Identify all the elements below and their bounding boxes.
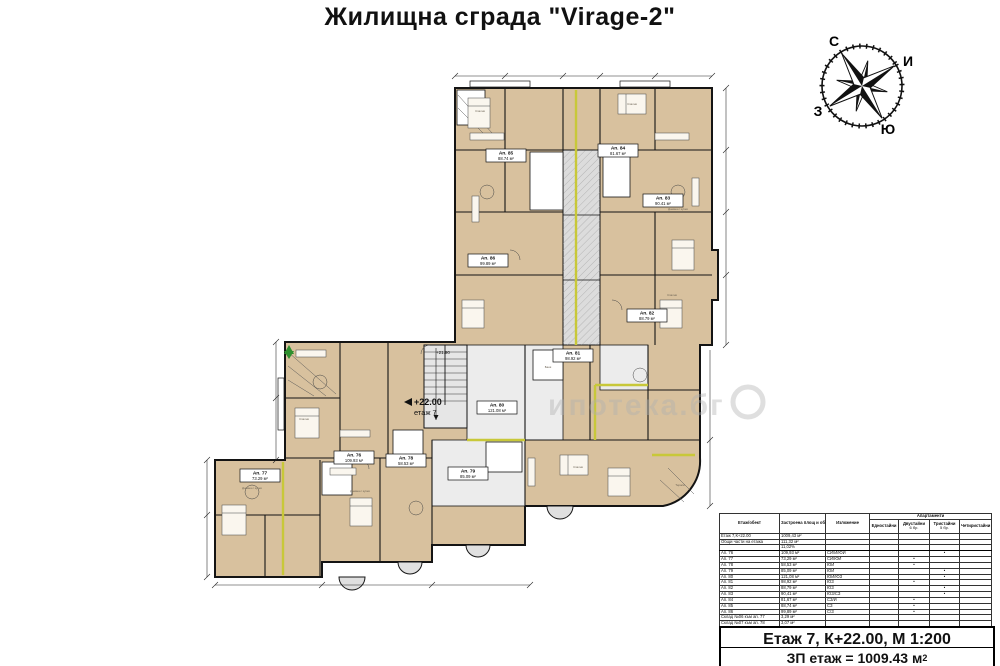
col-exposure: Изложение — [826, 514, 870, 534]
svg-text:85.09 м²: 85.09 м² — [460, 474, 477, 479]
watermark: ипотека.бг — [548, 387, 763, 422]
apartment-label: Ап. 85 88.74 м² — [486, 149, 526, 162]
compass-east: И — [903, 53, 913, 69]
col-three-room: Тристайни5 бр. — [930, 519, 960, 533]
svg-text:73.29 м²: 73.29 м² — [252, 476, 269, 481]
room-label: Баня — [545, 365, 552, 369]
level-floor: етаж 7 — [414, 408, 437, 417]
svg-text:99.89 м²: 99.89 м² — [480, 261, 497, 266]
watermark-text: ипотека.бг — [548, 389, 725, 422]
drawing-sheet: Жилищна сграда "Virage-2" — [0, 0, 1000, 666]
svg-text:88.74 м²: 88.74 м² — [498, 156, 515, 161]
col-object: Етаж/обект — [720, 514, 780, 534]
compass-north: С — [829, 33, 839, 49]
footer-area-text: ЗП етаж = 1009.43 м — [787, 650, 923, 666]
room-label: Дневна с кухня — [668, 207, 688, 211]
apartment-label: Ап. 77 73.29 м² — [240, 469, 280, 482]
room-label: Спалня — [475, 109, 485, 113]
apartment-label: Ап. 79 85.09 м² — [448, 467, 488, 480]
stair-elevation: +21.90 — [436, 350, 450, 355]
svg-text:90.41 м²: 90.41 м² — [655, 201, 672, 206]
apartment-label: Ап. 81 98.92 м² — [553, 349, 593, 362]
svg-text:88.79 м²: 88.79 м² — [639, 316, 656, 321]
apartment-label: Ап. 84 81.67 м² — [598, 144, 638, 157]
compass-west: З — [814, 103, 823, 119]
col-area: Застроена площ и обекти, м² — [780, 514, 826, 534]
room-label: Дневна с кухня — [350, 489, 370, 493]
room-label: Спалня — [667, 293, 677, 297]
col-two-count: 6 бр. — [900, 526, 928, 530]
room-label: Дневна с кухня — [242, 486, 262, 490]
elevator-hatch — [563, 150, 600, 345]
apartment-label: Ап. 78 58.53 м² — [386, 454, 426, 467]
apartment-label: Ап. 76 109.93 м² — [334, 451, 374, 464]
compass-south: Ю — [881, 121, 895, 137]
apartments-table: Етаж/обект Застроена площ и обекти, м² И… — [719, 513, 992, 633]
room-label: Тераса — [675, 483, 685, 487]
apartment-label: Ап. 83 90.41 м² — [643, 194, 683, 207]
room-label: Спалня — [299, 417, 309, 421]
room-label: Спалня — [573, 465, 583, 469]
apartment-label: Ап. 80 121.08 м² — [477, 401, 517, 414]
col-two-room: Двустайни6 бр. — [899, 519, 930, 533]
svg-text:81.67 м²: 81.67 м² — [610, 151, 627, 156]
col-one-room: Едностайни — [870, 519, 899, 533]
footer-area-line: ЗП етаж = 1009.43 м2 — [719, 647, 995, 666]
svg-text:121.08 м²: 121.08 м² — [488, 408, 507, 413]
apartment-label: Ап. 86 99.89 м² — [468, 254, 508, 267]
apartment-label: Ап. 82 88.79 м² — [627, 309, 667, 322]
compass-rose: С И Ю З — [807, 31, 917, 141]
footer-area-sup: 2 — [922, 653, 927, 663]
col-four-room: Четиристайни — [960, 519, 992, 533]
svg-text:58.53 м²: 58.53 м² — [398, 461, 415, 466]
level-elevation: +22.00 — [414, 397, 442, 407]
col-three-count: 5 бр. — [931, 526, 958, 530]
svg-text:109.93 м²: 109.93 м² — [345, 458, 364, 463]
room-label: Спалня — [627, 102, 637, 106]
footer-scale-text: Етаж 7, К+22.00, М 1:200 — [763, 631, 951, 649]
vestibule — [600, 345, 648, 390]
svg-text:98.92 м²: 98.92 м² — [565, 356, 582, 361]
